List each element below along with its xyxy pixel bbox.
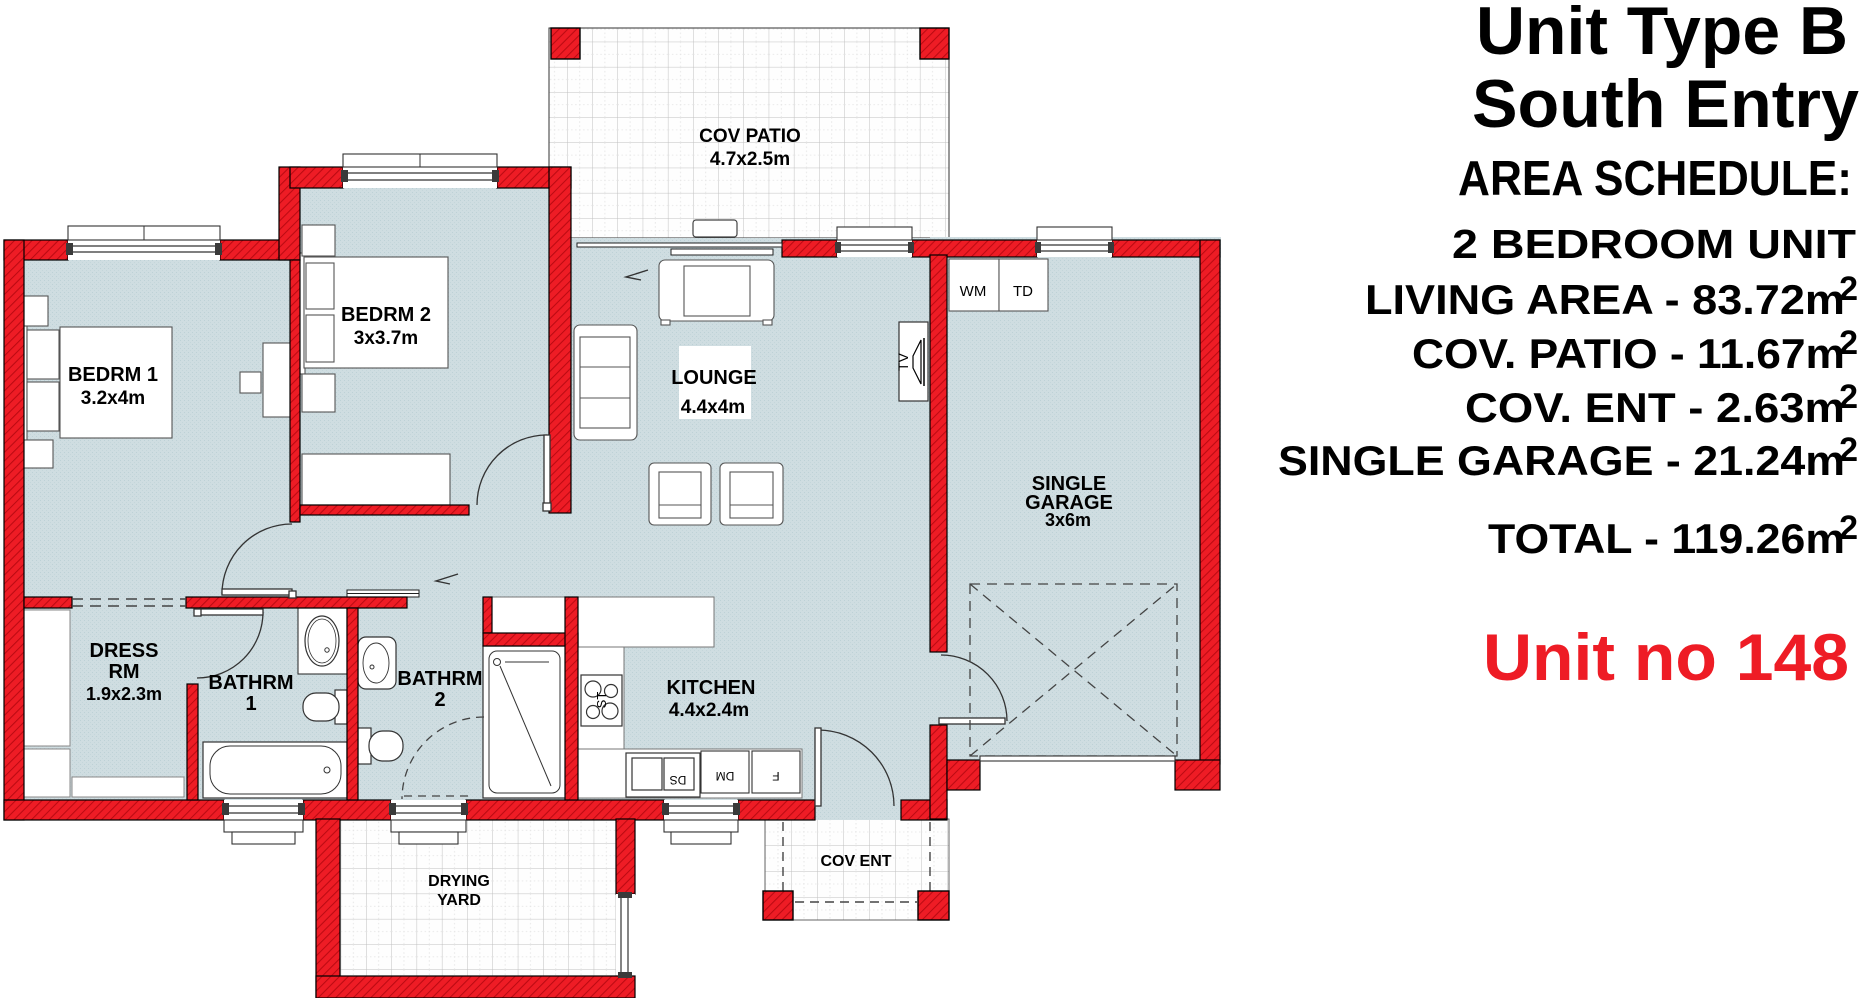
svg-text:4.4x4m: 4.4x4m: [681, 397, 745, 418]
svg-text:COV ENT: COV ENT: [820, 853, 891, 870]
svg-text:LIVING AREA - 83.72m: LIVING AREA - 83.72m: [1365, 276, 1845, 323]
svg-text:2: 2: [1839, 509, 1858, 547]
svg-text:3x6m: 3x6m: [1045, 510, 1091, 530]
svg-text:RM: RM: [108, 661, 139, 683]
svg-text:WM: WM: [960, 283, 987, 300]
svg-text:DRYING: DRYING: [428, 873, 490, 890]
svg-text:4.4x2.4m: 4.4x2.4m: [669, 700, 749, 721]
svg-text:South Entry: South Entry: [1472, 66, 1859, 142]
svg-text:2: 2: [1839, 431, 1858, 469]
svg-text:KITCHEN: KITCHEN: [667, 677, 756, 699]
svg-text:2: 2: [1839, 270, 1858, 308]
svg-text:2: 2: [1839, 324, 1858, 362]
svg-text:COV. ENT - 2.63m: COV. ENT - 2.63m: [1465, 384, 1845, 431]
svg-text:1: 1: [245, 693, 256, 715]
svg-text:BATHRM: BATHRM: [208, 672, 293, 694]
svg-text:2: 2: [1839, 378, 1858, 416]
svg-text:YARD: YARD: [437, 892, 481, 909]
svg-text:BEDRM 1: BEDRM 1: [68, 364, 158, 386]
svg-text:1.9x2.3m: 1.9x2.3m: [86, 684, 162, 704]
svg-text:SINGLE GARAGE - 21.24m: SINGLE GARAGE - 21.24m: [1278, 437, 1845, 484]
svg-text:COV. PATIO - 11.67m: COV. PATIO - 11.67m: [1412, 330, 1845, 377]
svg-text:3.2x4m: 3.2x4m: [81, 388, 145, 409]
svg-text:LOUNGE: LOUNGE: [671, 367, 757, 389]
svg-text:ST: ST: [594, 692, 609, 709]
svg-text:Unit no 148: Unit no 148: [1483, 620, 1849, 694]
svg-text:DRESS: DRESS: [90, 640, 159, 662]
svg-text:COV PATIO: COV PATIO: [699, 126, 801, 147]
svg-text:BATHRM: BATHRM: [397, 668, 482, 690]
svg-text:3x3.7m: 3x3.7m: [354, 328, 418, 349]
svg-text:DM: DM: [716, 769, 735, 783]
svg-text:Unit Type B: Unit Type B: [1476, 0, 1848, 69]
svg-text:BEDRM 2: BEDRM 2: [341, 304, 431, 326]
svg-text:TV: TV: [895, 352, 911, 371]
svg-text:TOTAL - 119.26m: TOTAL - 119.26m: [1488, 515, 1845, 562]
svg-text:2 BEDROOM UNIT: 2 BEDROOM UNIT: [1452, 221, 1856, 267]
svg-text:2: 2: [434, 689, 445, 711]
svg-text:AREA SCHEDULE:: AREA SCHEDULE:: [1458, 152, 1852, 206]
svg-text:TD: TD: [1013, 283, 1033, 300]
svg-text:F: F: [772, 769, 779, 783]
svg-text:DS: DS: [670, 773, 687, 787]
svg-text:4.7x2.5m: 4.7x2.5m: [710, 149, 790, 170]
